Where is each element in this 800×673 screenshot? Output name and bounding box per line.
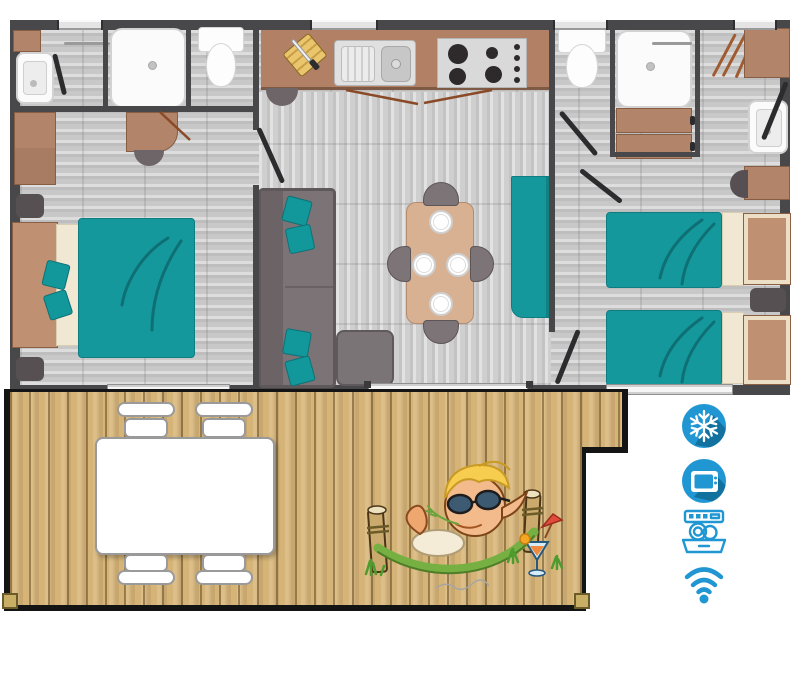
bed-duvet [606,212,722,288]
shower-glass [652,42,692,45]
burner [449,68,466,85]
bed-duvet [606,310,722,386]
partition-wall [695,28,700,155]
single-bed [606,310,790,388]
partition-wall [253,185,259,387]
bed-headboard [744,214,790,284]
burner [448,44,468,64]
hob [437,38,527,88]
sunglasses-lens [476,491,500,509]
shower-drain [646,62,655,71]
terrace-chair [117,402,175,417]
air-conditioning-badge [680,402,728,450]
burner [485,66,502,83]
single-bed [606,210,790,288]
plate [429,292,453,316]
sink-drainer [341,46,375,82]
bathroom-cabinet [13,30,41,52]
coffee-table [336,330,394,386]
basin-bowl [23,61,47,95]
sofa-cushion [282,328,312,358]
basin-faucet [30,80,37,87]
window [310,20,378,30]
kitchen-sink [334,40,416,86]
toilet-bowl [206,43,236,87]
bed-sheet [722,212,744,286]
toilet [558,28,606,90]
hob-knob [514,55,520,61]
partition-wall [549,28,555,332]
plate [446,253,470,277]
vanity-bench [744,166,790,200]
wardrobe [14,112,56,185]
partition-wall [610,28,615,155]
terrace-chair-seat [202,418,246,438]
burner [486,47,498,59]
wifi-icon [687,570,721,604]
knife-icon [291,38,312,62]
terrace-table [95,437,275,555]
partition-wall [253,28,259,130]
floorplan-canvas [0,0,800,673]
shower-drain [148,61,157,70]
terrace-chair [195,570,253,585]
mascot-arm [407,506,427,534]
sofa-seam [285,286,333,288]
artist-signature [436,580,489,589]
double-bed [12,216,197,360]
hob-knob [514,44,520,50]
terrace-chair-seat [124,418,168,438]
shower-tray [110,28,186,108]
dishwasher-icon [683,511,725,552]
sunglasses-lens [448,495,472,513]
nightstand [16,357,44,381]
bed-headboard [744,316,790,384]
bed-sheet [722,312,744,384]
sink-faucet [391,59,401,69]
sofa-cushion [285,224,316,255]
window-post [364,381,371,388]
nightstand [16,194,44,218]
plate [412,253,436,277]
vanity-cabinet [744,28,790,78]
deck-post [574,593,590,609]
terrace-chair [117,570,175,585]
window [733,20,777,30]
window-post [526,381,533,388]
sofa-back [261,191,283,385]
partition-wall [103,28,108,110]
window [57,20,103,30]
amenities-column [678,400,732,610]
hammock-mascot-illustration [340,448,570,598]
partition-wall [610,152,700,157]
partition-wall [186,28,191,110]
tall-cabinet [511,176,551,318]
dishwasher-badge [678,508,730,556]
desk [126,112,178,152]
grass-tuft [552,556,562,569]
toilet [198,27,244,89]
bathroom-drawer [616,108,692,133]
wifi-badge [682,560,726,606]
plate [429,210,453,234]
nightstand [750,288,786,312]
deck-post [2,593,18,609]
partition-wall [18,106,259,112]
bed-duvet [78,218,195,358]
hob-knob [514,66,520,72]
tv-icon [691,471,718,492]
hob-knob [514,77,520,83]
washbasin [16,52,54,104]
terrace-chair [195,402,253,417]
toilet-bowl [566,44,598,88]
window [553,20,608,30]
tv-badge [680,457,728,505]
